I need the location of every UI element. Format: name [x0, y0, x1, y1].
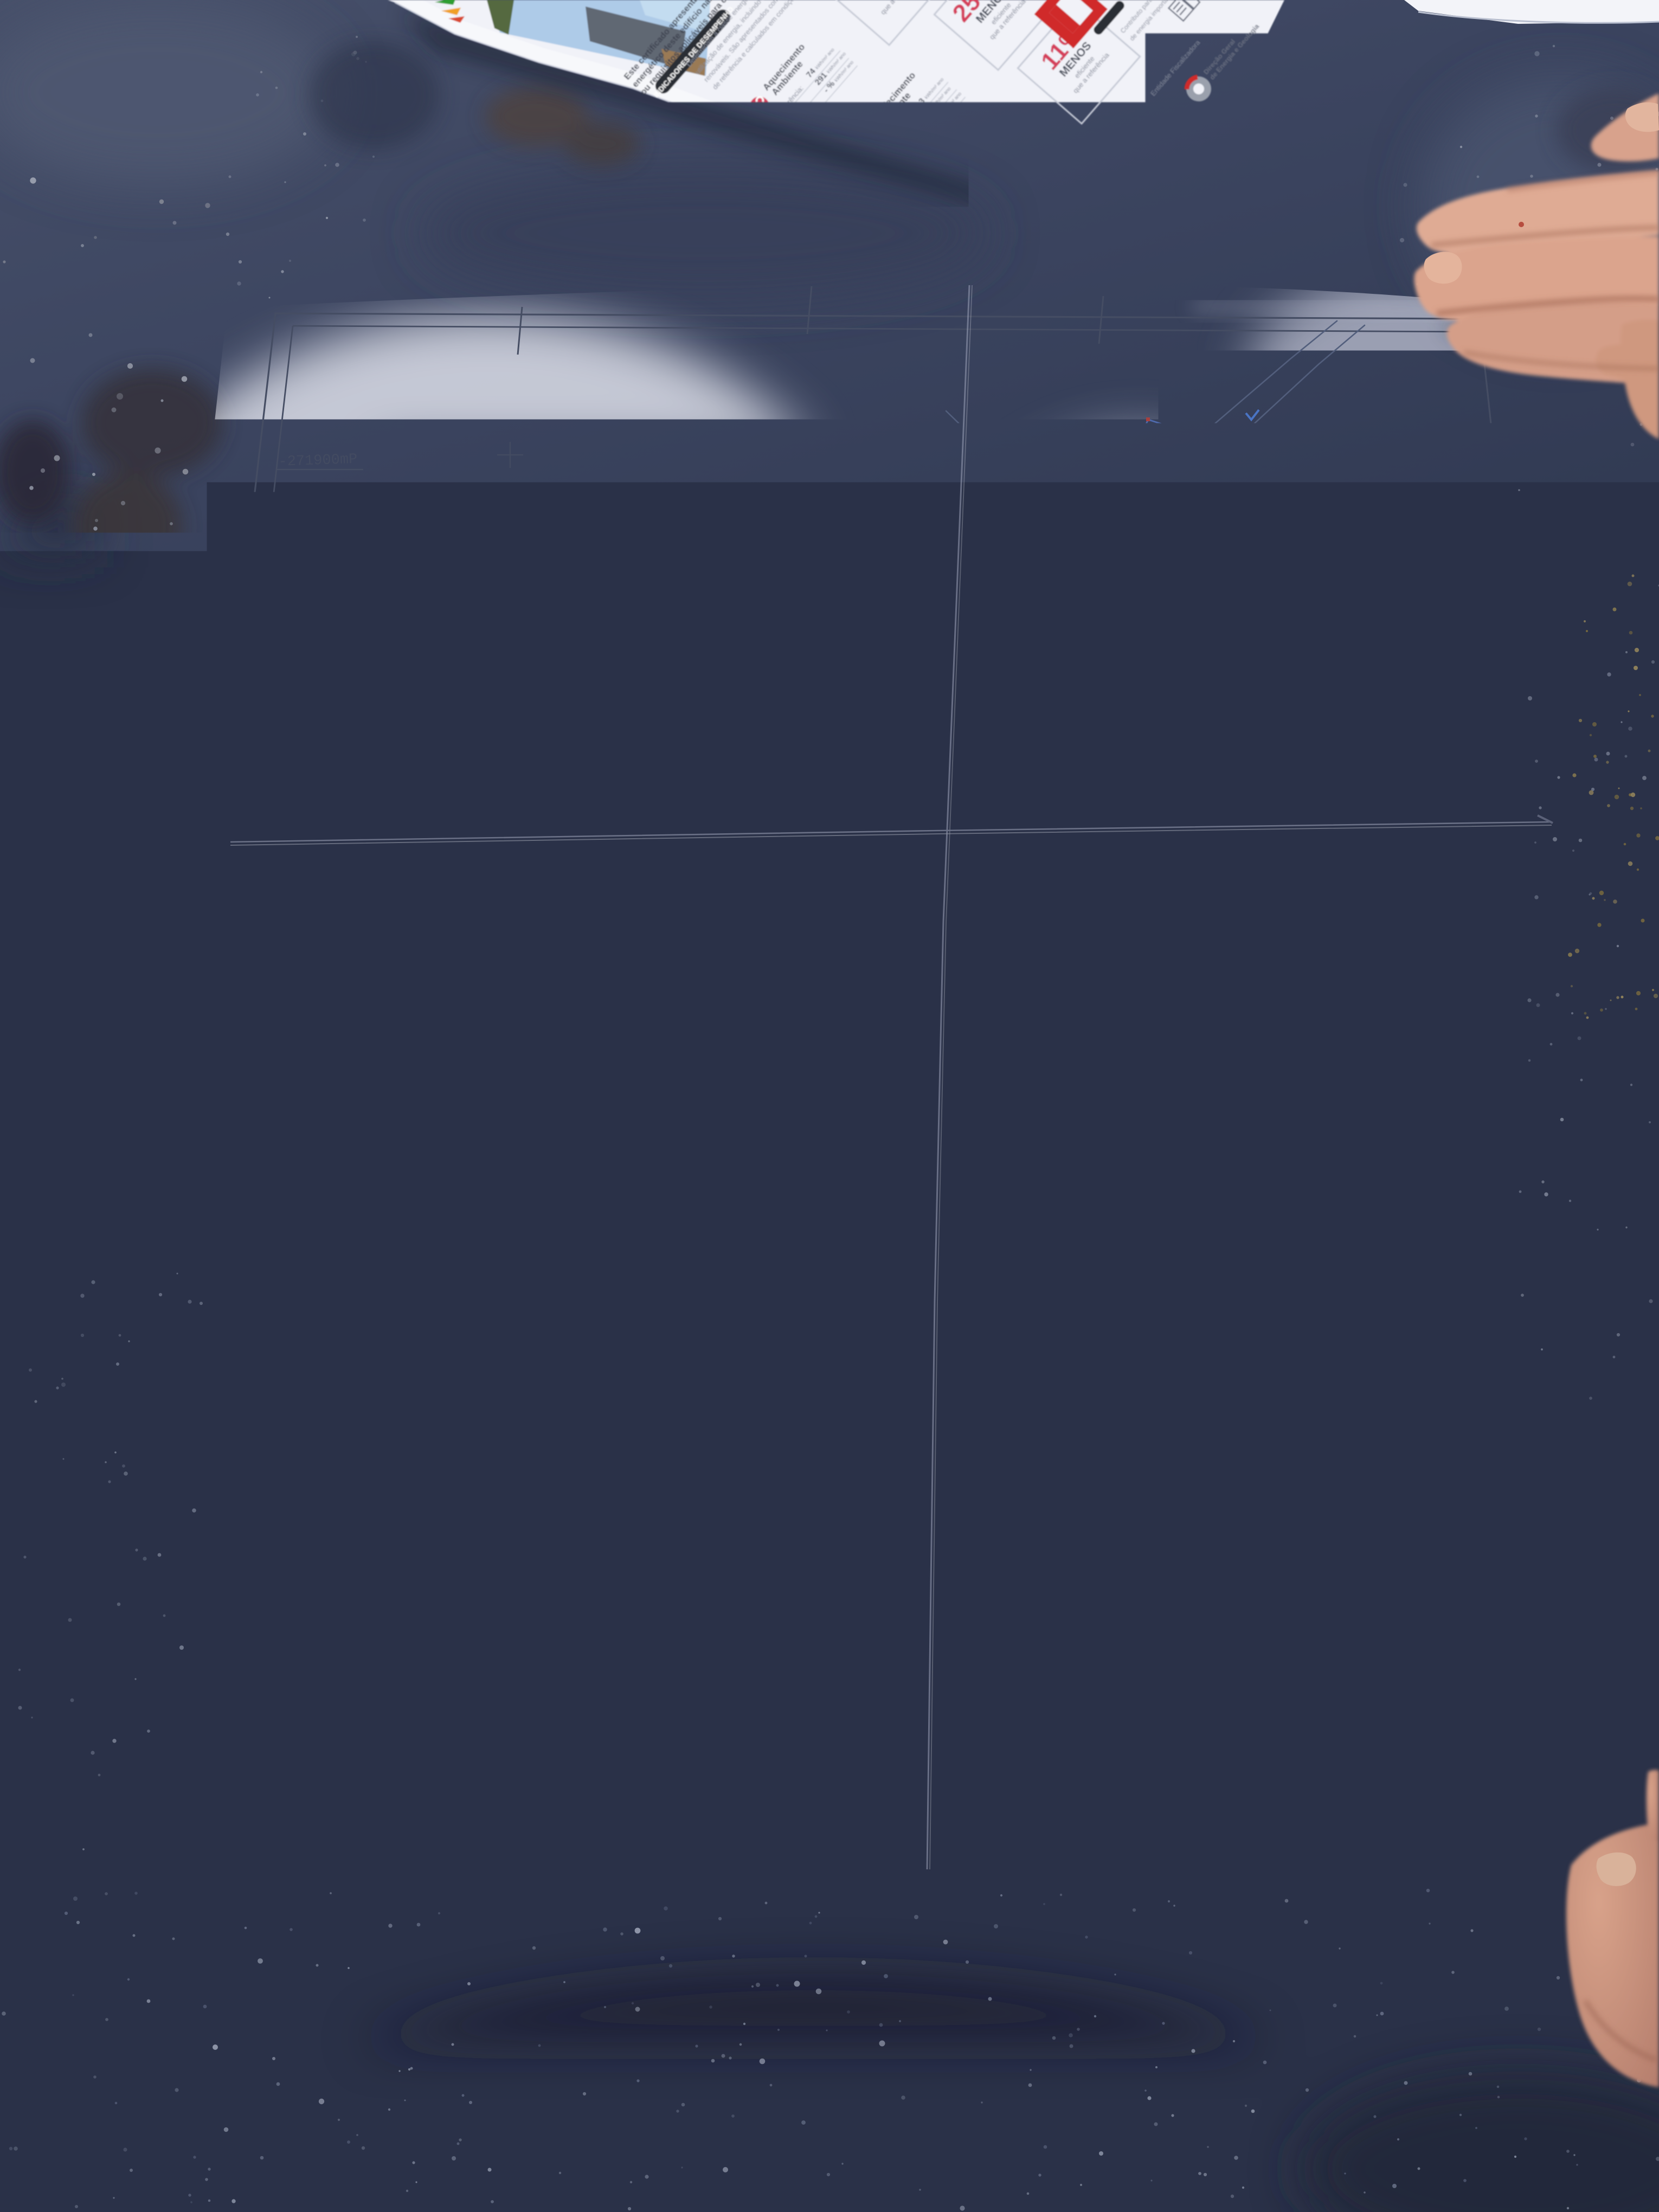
svg-text:9462: 9462 — [1502, 1462, 1525, 1473]
svg-text:Escala: Escala — [1418, 1770, 1454, 1784]
svg-text:-271900mP: -271900mP — [278, 452, 358, 471]
svg-text:Lev. Topográfico: Lev. Topográfico — [1368, 1684, 1456, 1699]
svg-text:Local: Local — [1311, 1738, 1343, 1752]
svg-text:Engenharia Topografica Lda: Engenharia Topografica Lda — [1329, 1568, 1534, 1585]
svg-text:27/06/2019: 27/06/2019 — [1319, 1798, 1378, 1812]
svg-text:172: 172 — [1505, 1429, 1522, 1441]
svg-text:Desc.: Desc. — [1311, 1683, 1341, 1697]
svg-text:Sist. Coord.: Sist. Coord. — [1496, 1772, 1555, 1785]
svg-text:Área coberta: Área coberta — [1362, 1429, 1421, 1441]
svg-text:Data: Data — [1311, 1766, 1338, 1780]
svg-text:-272000mP: -272000mP — [214, 1015, 294, 1034]
svg-text:Área anexos: Área anexos — [1362, 1445, 1420, 1457]
svg-text:R. Marçal Aboim Lote 4 3ª esq: R. Marçal Aboim Lote 4 3ª esq — [1334, 1592, 1517, 1607]
svg-text:-272050mP: -272050mP — [177, 1343, 256, 1362]
svg-text:Georef: Georef — [1348, 1538, 1439, 1566]
svg-text:fhantao@gmail.com: fhantao@gmail.com — [1337, 1652, 1457, 1667]
svg-text:12400mM: 12400mM — [1116, 1802, 1132, 1863]
svg-text:Área total do Prédio: Área total do Prédio — [1362, 1462, 1453, 1473]
svg-text:Cliente: Cliente — [1310, 1708, 1349, 1723]
svg-text:Corcitos - Loulé: Corcitos - Loulé — [1369, 1741, 1458, 1756]
svg-text:12350mM: 12350mM — [757, 1785, 774, 1847]
svg-text:-271950mP: -271950mP — [248, 715, 328, 734]
svg-text:Artigo nº 2653: Artigo nº 2653 — [1364, 1405, 1470, 1424]
svg-text:-272100mP: -272100mP — [137, 1695, 216, 1714]
svg-text:Francisco José Faisca Rosa: Francisco José Faisca Rosa — [1375, 1711, 1529, 1725]
svg-text:31: 31 — [1505, 1445, 1516, 1457]
svg-text:12300mM: 12300mM — [393, 1769, 409, 1830]
svg-text:1/500: 1/500 — [1430, 1804, 1460, 1818]
svg-text:ETRS 89: ETRS 89 — [1510, 1812, 1555, 1825]
svg-text:N: N — [1361, 505, 1382, 538]
svg-text:PT TM 06: PT TM 06 — [1511, 1795, 1562, 1808]
svg-text:8100-705 Loulé: 8100-705 Loulé — [1335, 1610, 1429, 1624]
svg-text:Telm : 962918474: Telm : 962918474 — [1337, 1635, 1444, 1649]
